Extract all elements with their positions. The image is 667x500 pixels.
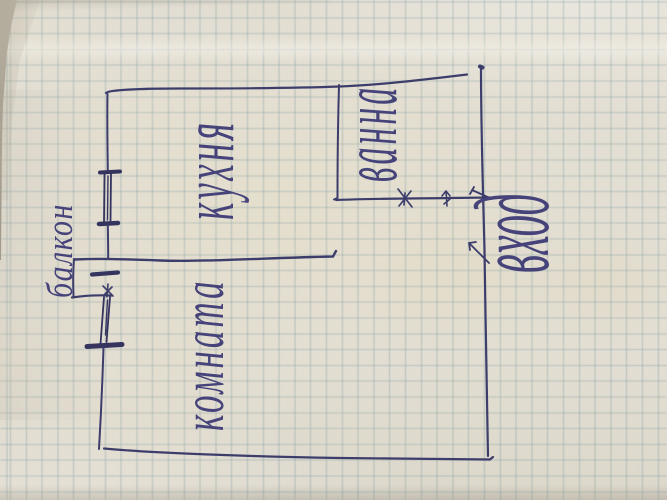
svg-text:балкон: балкон bbox=[40, 203, 81, 298]
svg-text:кухня: кухня bbox=[167, 120, 249, 220]
svg-text:ванна: ванна bbox=[327, 85, 414, 182]
svg-text:вход: вход bbox=[452, 194, 571, 273]
svg-text:комната: комната bbox=[171, 278, 237, 431]
